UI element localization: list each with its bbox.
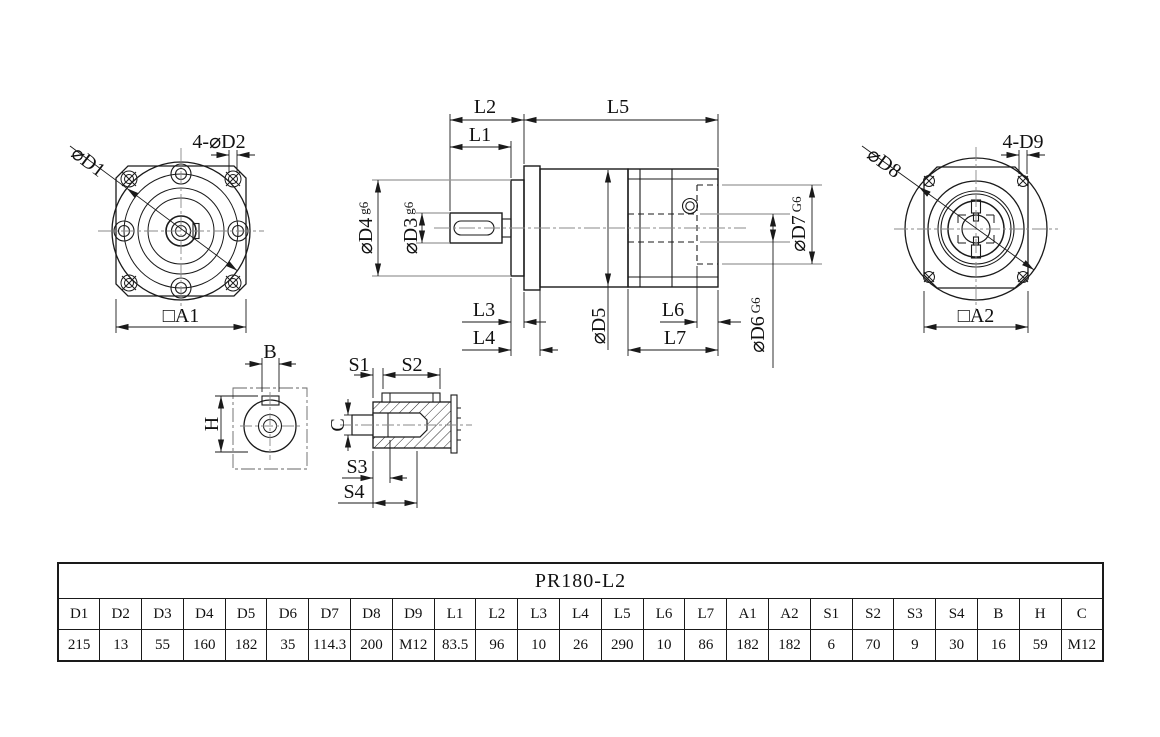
- dim-value-cell-d9: M12: [392, 630, 434, 662]
- dim-value-cell-d4: 160: [183, 630, 225, 662]
- dim-d3-label: ⌀D3g6: [400, 201, 422, 254]
- dim-header-cell-d7: D7: [309, 599, 351, 630]
- dim-header-cell-s1: S1: [810, 599, 852, 630]
- dim-d4-label: ⌀D4g6: [355, 201, 377, 254]
- dim-value-cell-l7: 86: [685, 630, 727, 662]
- dim-header-cell-d6: D6: [267, 599, 309, 630]
- dim-header-cell-d1: D1: [58, 599, 100, 630]
- dim-value-cell-s2: 70: [852, 630, 894, 662]
- dim-header-cell-s4: S4: [936, 599, 978, 630]
- table-header-row: D1D2D3D4D5D6D7D8D9L1L2L3L4L5L6L7A1A2S1S2…: [58, 599, 1103, 630]
- dim-header-cell-d8: D8: [351, 599, 393, 630]
- dim-header-cell-a2: A2: [769, 599, 811, 630]
- dimension-table: PR180-L2 D1D2D3D4D5D6D7D8D9L1L2L3L4L5L6L…: [57, 562, 1104, 662]
- front-view: [98, 148, 264, 314]
- dim-header-cell-s2: S2: [852, 599, 894, 630]
- dim-header-cell-b: B: [978, 599, 1020, 630]
- dimension-table-wrap: PR180-L2 D1D2D3D4D5D6D7D8D9L1L2L3L4L5L6L…: [57, 562, 1104, 662]
- dim-value-cell-d1: 215: [58, 630, 100, 662]
- dim-value-cell-d8: 200: [351, 630, 393, 662]
- dim-d6-label: ⌀D6G6: [747, 297, 769, 353]
- dim-header-cell-h: H: [1019, 599, 1061, 630]
- dim-s2-label: S2: [401, 354, 422, 376]
- rear-view: [894, 147, 1058, 311]
- drawing-sheet: ⌀D1 4-⌀D2 □A1: [0, 0, 1160, 737]
- rear-holes-label: 4-D9: [1002, 131, 1043, 153]
- dim-value-cell-s3: 9: [894, 630, 936, 662]
- dim-header-cell-l5: L5: [601, 599, 643, 630]
- dim-value-cell-c: M12: [1061, 630, 1103, 662]
- dim-header-cell-l1: L1: [434, 599, 476, 630]
- dim-header-cell-l7: L7: [685, 599, 727, 630]
- clamp-slot-tab: [382, 393, 440, 402]
- front-square-label: □A1: [163, 305, 200, 327]
- dim-value-cell-a2: 182: [769, 630, 811, 662]
- dim-d7-label: ⌀D7G6: [788, 196, 810, 252]
- dim-value-cell-d6: 35: [267, 630, 309, 662]
- dim-header-cell-a1: A1: [727, 599, 769, 630]
- shaft-end-detail: [233, 388, 307, 469]
- rear-square-label: □A2: [958, 305, 995, 327]
- technical-drawing: ⌀D1 4-⌀D2 □A1: [0, 0, 1160, 548]
- dim-value-cell-d7: 114.3: [309, 630, 351, 662]
- dim-value-cell-s1: 6: [810, 630, 852, 662]
- dim-value-cell-s4: 30: [936, 630, 978, 662]
- dim-header-cell-d2: D2: [100, 599, 142, 630]
- dim-l7-label: L7: [664, 327, 686, 349]
- dim-value-cell-d5: 182: [225, 630, 267, 662]
- dim-l1-label: L1: [469, 124, 491, 146]
- rear-dia-label: ⌀D8: [863, 143, 905, 182]
- coupling-section-detail: [340, 393, 472, 453]
- dim-header-cell-c: C: [1061, 599, 1103, 630]
- dim-b-label: B: [263, 341, 276, 363]
- dim-value-cell-a1: 182: [727, 630, 769, 662]
- dim-value-cell-b: 16: [978, 630, 1020, 662]
- dim-header-cell-l3: L3: [518, 599, 560, 630]
- dim-l5-label: L5: [607, 96, 629, 118]
- dim-h-label: H: [201, 417, 223, 431]
- dim-header-cell-d9: D9: [392, 599, 434, 630]
- dim-header-cell-d4: D4: [183, 599, 225, 630]
- dim-header-cell-l2: L2: [476, 599, 518, 630]
- dim-l3-label: L3: [473, 299, 495, 321]
- dim-s1-label: S1: [348, 354, 369, 376]
- dim-header-cell-d3: D3: [142, 599, 184, 630]
- dim-value-cell-l6: 10: [643, 630, 685, 662]
- table-title-row: PR180-L2: [58, 563, 1103, 599]
- dim-value-cell-l5: 290: [601, 630, 643, 662]
- rear-centerlines: [894, 147, 1058, 311]
- dim-c-label: C: [327, 418, 349, 431]
- dim-value-cell-h: 59: [1019, 630, 1061, 662]
- table-value-row: 215135516018235114.3200M1283.59610262901…: [58, 630, 1103, 662]
- hidden-bores: [628, 185, 718, 264]
- side-view: [434, 166, 746, 290]
- dim-l4-label: L4: [473, 327, 495, 349]
- dim-value-cell-l4: 26: [560, 630, 602, 662]
- table-title-cell: PR180-L2: [58, 563, 1103, 599]
- dim-s3-label: S3: [346, 456, 367, 478]
- dim-value-cell-l2: 96: [476, 630, 518, 662]
- front-holes-label: 4-⌀D2: [192, 131, 245, 153]
- slotted-end-plate: [451, 395, 457, 453]
- dim-header-cell-l4: L4: [560, 599, 602, 630]
- dim-header-cell-l6: L6: [643, 599, 685, 630]
- dim-l2-label: L2: [474, 96, 496, 118]
- dim-d5-label: ⌀D5: [588, 308, 610, 344]
- dim-s4-label: S4: [343, 481, 364, 503]
- dim-l6-label: L6: [662, 299, 684, 321]
- dim-header-cell-s3: S3: [894, 599, 936, 630]
- dim-value-cell-l1: 83.5: [434, 630, 476, 662]
- dim-value-cell-d3: 55: [142, 630, 184, 662]
- dim-header-cell-d5: D5: [225, 599, 267, 630]
- dim-value-cell-d2: 13: [100, 630, 142, 662]
- clamp-screw-plug: [683, 199, 698, 214]
- dim-value-cell-l3: 10: [518, 630, 560, 662]
